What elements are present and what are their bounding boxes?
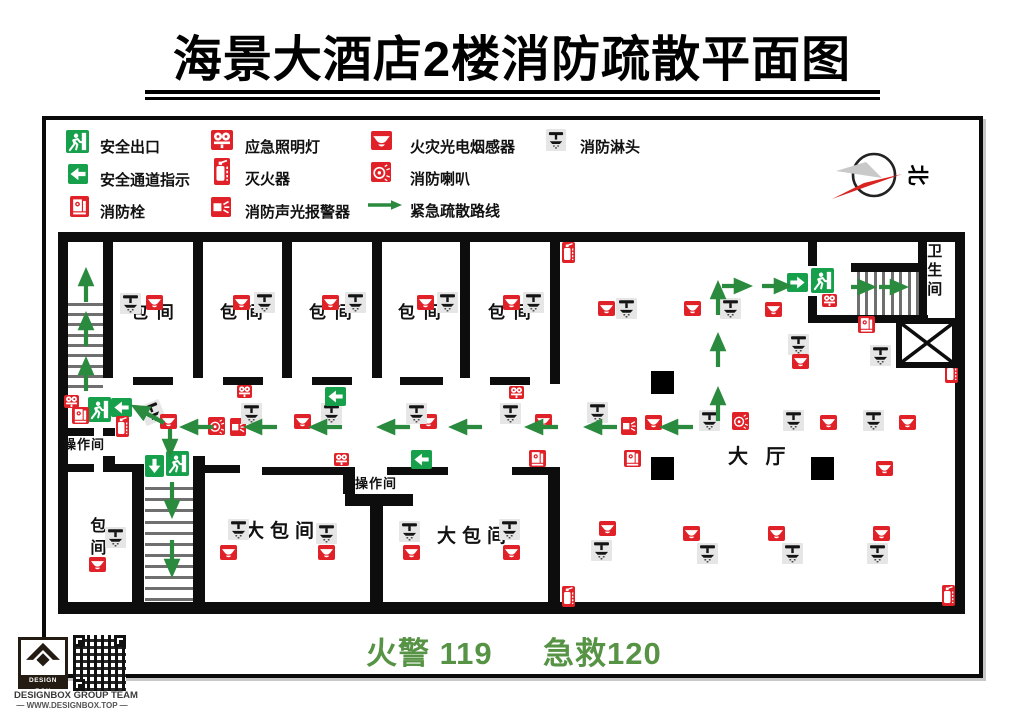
wall (550, 242, 560, 384)
legend-item-label: 应急照明灯 (245, 136, 320, 157)
sprinkler-icon (316, 523, 337, 544)
smoke-detector-icon (89, 557, 106, 572)
direction-left-sign-icon (325, 387, 346, 406)
wall (851, 263, 920, 272)
fire-horn-icon (371, 162, 391, 182)
stair-step (68, 375, 103, 378)
sprinkler-icon (587, 402, 608, 423)
fire-hydrant-icon (529, 450, 546, 467)
smoke-detector-icon (598, 301, 615, 316)
wall (548, 475, 560, 604)
sprinkler-icon (788, 334, 809, 355)
wall (223, 377, 263, 385)
fire-extinguisher-icon (942, 585, 955, 606)
stair-step (68, 313, 103, 316)
pillar (811, 457, 834, 480)
stair-step (145, 532, 193, 535)
sprinkler-icon (500, 403, 521, 424)
sprinkler-icon (499, 519, 520, 540)
stair-step (68, 385, 103, 388)
smoke-detector-icon (371, 131, 392, 150)
fire-hydrant-icon (624, 450, 641, 467)
stair-step (916, 272, 919, 315)
brand-site-text: — WWW.DESIGNBOX.TOP — (14, 701, 130, 710)
smoke-detector-icon (318, 545, 335, 560)
sprinkler-icon (105, 527, 126, 548)
smoke-detector-icon (820, 415, 837, 430)
wall (193, 456, 205, 604)
wall (262, 467, 355, 475)
designbox-emblem-icon (22, 641, 64, 673)
wall (58, 464, 94, 472)
wall (58, 232, 965, 242)
wall (103, 456, 115, 472)
room-label: 大 厅 (728, 446, 792, 469)
smoke-detector-icon (876, 461, 893, 476)
sprinkler-icon (699, 410, 720, 431)
sprinkler-icon (546, 129, 566, 151)
wall (132, 464, 144, 604)
fire-horn-icon (732, 412, 749, 430)
smoke-detector-icon (899, 415, 916, 430)
smoke-detector-icon (684, 301, 701, 316)
wall (58, 232, 68, 612)
stair-step (145, 598, 193, 601)
wall (343, 467, 355, 494)
smoke-detector-icon (417, 295, 434, 310)
sprinkler-icon (783, 410, 804, 431)
stair-step (145, 543, 193, 546)
fire-horn-icon (208, 417, 225, 435)
wall (282, 242, 292, 378)
pillar (651, 371, 674, 394)
stair-step (145, 576, 193, 579)
sprinkler-icon (406, 403, 427, 424)
brand-team-text: DESIGNBOX GROUP TEAM (14, 690, 130, 701)
smoke-detector-icon (792, 354, 809, 369)
smoke-detector-icon (146, 295, 163, 310)
smoke-detector-icon (535, 414, 552, 429)
wall (103, 242, 113, 378)
sprinkler-icon (228, 519, 249, 540)
compass-icon: 北 (822, 144, 940, 208)
smoke-detector-icon (765, 302, 782, 317)
exit-sign-icon (166, 451, 189, 476)
sprinkler-icon (591, 540, 612, 561)
legend-item-label: 消防喇叭 (410, 168, 470, 189)
smoke-detector-icon (873, 526, 890, 541)
stair-step (145, 521, 193, 524)
qr-code (73, 635, 126, 691)
sprinkler-icon (867, 543, 888, 564)
smoke-detector-icon (645, 415, 662, 430)
room-label: 包间 (86, 517, 104, 561)
exit-sign-icon (66, 130, 89, 153)
title-underline-2 (145, 97, 880, 100)
stair-step (899, 272, 902, 315)
fire-hydrant-icon (72, 407, 89, 424)
stair-step (68, 344, 103, 347)
fire-extinguisher-icon (562, 586, 575, 607)
sprinkler-icon (863, 410, 884, 431)
smoke-detector-icon (503, 545, 520, 560)
elevator-shaft (896, 318, 958, 368)
smoke-detector-icon (503, 295, 520, 310)
sprinkler-icon (782, 543, 803, 564)
legend-item-label: 消防栓 (100, 201, 145, 222)
compass-north-label: 北 (905, 165, 928, 186)
designbox-logo-text: DESIGN BOX (21, 675, 65, 686)
smoke-detector-icon (220, 545, 237, 560)
room-label: 操作间 (63, 438, 105, 453)
fire-extinguisher-icon (214, 158, 230, 185)
fire-phone-number: 火警 119 (366, 628, 493, 673)
sound-light-alarm-icon (211, 197, 231, 217)
stair-step (68, 334, 103, 337)
wall (133, 377, 173, 385)
sprinkler-icon (870, 345, 891, 366)
stair-step (882, 272, 885, 315)
stair-step (145, 554, 193, 557)
stair-step (857, 272, 860, 315)
evacuation-route-arrow-icon (367, 199, 403, 211)
stair-step (68, 354, 103, 357)
stair-step (891, 272, 894, 315)
direction-down-sign-icon (145, 455, 164, 477)
stair-step (865, 272, 868, 315)
direction-left-sign-icon (411, 450, 432, 469)
smoke-detector-icon (160, 414, 177, 429)
exit-sign-icon (88, 397, 111, 422)
stair-step (145, 565, 193, 568)
wall (955, 232, 965, 614)
legend-item-label: 安全通道指示 (100, 169, 190, 190)
wall (312, 377, 352, 385)
sprinkler-icon (437, 292, 458, 313)
wall (103, 428, 115, 436)
wall (370, 506, 383, 604)
direction-left-sign-icon (111, 398, 132, 417)
legend-item-label: 灭火器 (245, 168, 290, 189)
stair-step (68, 365, 103, 368)
stair-step (68, 323, 103, 326)
exit-sign-icon (811, 268, 834, 293)
smoke-detector-icon (294, 414, 311, 429)
stair-step (145, 487, 193, 490)
legend-item-label: 火灾光电烟感器 (410, 136, 515, 157)
fire-extinguisher-icon (116, 416, 129, 437)
emergency-light-icon (237, 385, 252, 398)
sound-light-alarm-icon (621, 417, 637, 435)
fire-extinguisher-icon (562, 242, 575, 263)
legend-item-label: 消防淋头 (580, 136, 640, 157)
sprinkler-icon (720, 298, 741, 319)
evacuation-plan-poster: 海景大酒店2楼消防疏散平面图 安全出口安全通道指示消防栓应急照明灯灭火器消防声光… (0, 0, 1024, 724)
room-label: 大包间 (245, 521, 320, 543)
stair-step (874, 272, 877, 315)
pillar (651, 457, 674, 480)
sprinkler-icon (254, 292, 275, 313)
sprinkler-icon (616, 298, 637, 319)
fire-hydrant-icon (858, 316, 875, 333)
smoke-detector-icon (322, 295, 339, 310)
stair-step (908, 272, 911, 315)
title-underline (145, 90, 880, 94)
room-label: 操作间 (355, 477, 397, 492)
wall (345, 494, 413, 506)
sprinkler-icon (241, 403, 262, 424)
room-label: 卫生间 (925, 243, 942, 300)
direction-left-sign-icon (68, 164, 88, 184)
emergency-light-icon (334, 453, 349, 466)
legend-item-label: 紧急疏散路线 (410, 200, 500, 221)
emergency-light-icon (822, 294, 837, 307)
sprinkler-icon (120, 293, 141, 314)
stair-step (145, 498, 193, 501)
stair-step (145, 587, 193, 590)
wall (490, 377, 530, 385)
sprinkler-icon (321, 403, 342, 424)
stair-step (68, 303, 103, 306)
wall (372, 242, 382, 378)
legend-item-label: 消防声光报警器 (245, 201, 350, 222)
wall (460, 242, 470, 378)
sprinkler-icon (523, 292, 544, 313)
smoke-detector-icon (768, 526, 785, 541)
page-title: 海景大酒店2楼消防疏散平面图 (0, 20, 1024, 91)
wall (400, 377, 443, 385)
wall (193, 242, 203, 378)
direction-right-sign-icon (787, 273, 808, 292)
wall (58, 428, 94, 436)
smoke-detector-icon (683, 526, 700, 541)
fire-hydrant-icon (70, 196, 89, 217)
designbox-logo: DESIGN BOX (18, 637, 68, 689)
sprinkler-icon (697, 543, 718, 564)
ambulance-phone-number: 急救120 (543, 628, 662, 673)
emergency-light-icon (211, 130, 233, 150)
sprinkler-icon (399, 521, 420, 542)
smoke-detector-icon (233, 295, 250, 310)
stair-step (145, 509, 193, 512)
emergency-light-icon (509, 386, 524, 399)
wall (512, 467, 560, 475)
legend-item-label: 安全出口 (100, 136, 160, 157)
sprinkler-icon (345, 292, 366, 313)
wall (205, 465, 240, 473)
smoke-detector-icon (403, 545, 420, 560)
wall (808, 242, 817, 266)
smoke-detector-icon (599, 521, 616, 536)
